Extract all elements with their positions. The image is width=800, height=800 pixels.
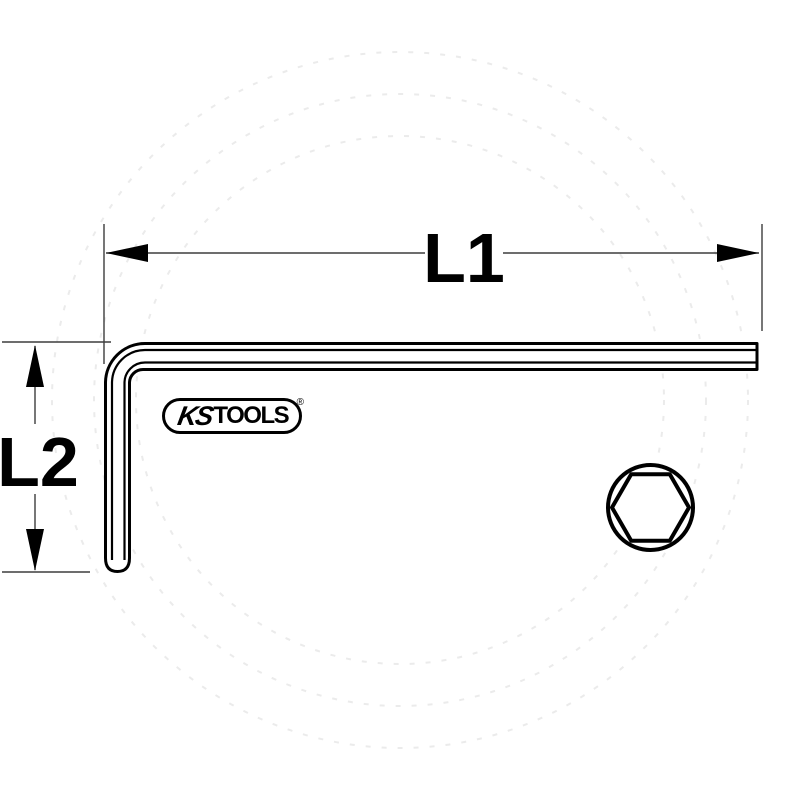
cross-section-hexagon-icon — [612, 474, 689, 541]
l1-arrowhead-left-icon — [106, 244, 148, 262]
logo-ks-text: KS — [175, 403, 213, 430]
ks-tools-logo: KS TOOLS ® — [162, 398, 302, 434]
registered-trademark-icon: ® — [297, 397, 304, 408]
hex-cross-section — [608, 465, 693, 550]
l2-arrowhead-up-icon — [26, 345, 44, 387]
drawing-canvas: L1 L2 — [0, 0, 800, 800]
watermark-circles — [52, 52, 748, 748]
l1-dimension-label: L1 — [423, 219, 505, 297]
product-technical-drawing: L1 L2 KS TOOLS ® — [0, 0, 800, 800]
l2-dimension-label: L2 — [0, 423, 79, 501]
logo-tools-text: TOOLS — [213, 404, 288, 428]
l2-arrowhead-down-icon — [26, 529, 44, 571]
l2-dimension: L2 — [0, 342, 111, 572]
l1-arrowhead-right-icon — [717, 244, 759, 262]
watermark-circle-outer — [52, 52, 748, 748]
